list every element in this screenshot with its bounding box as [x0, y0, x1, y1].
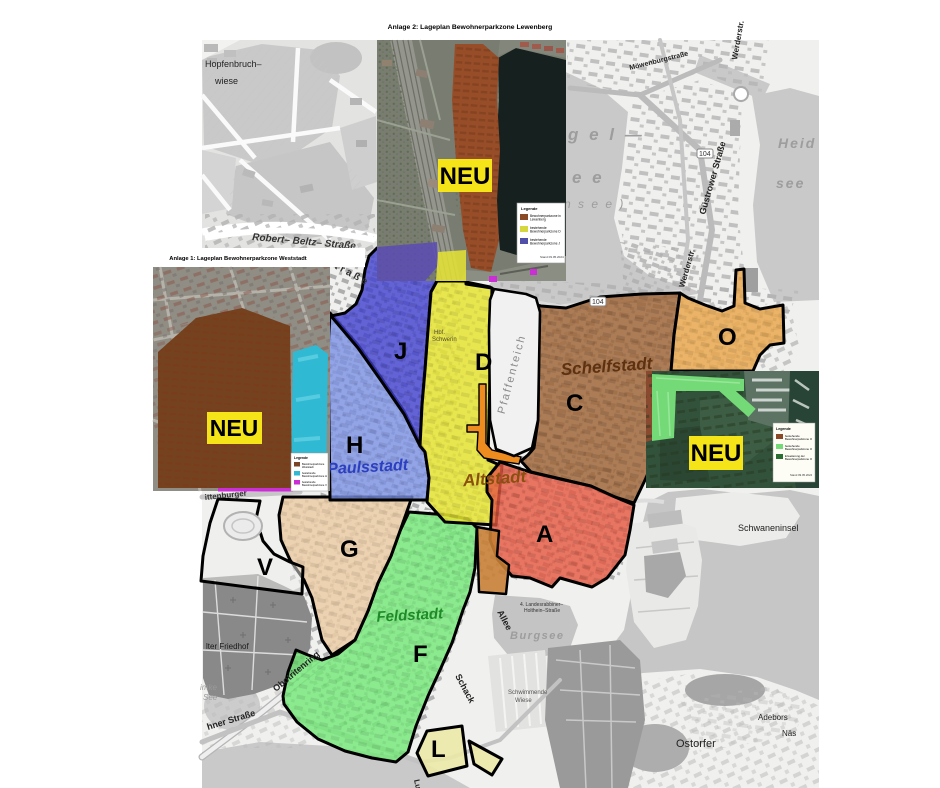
svg-text:Legende: Legende: [521, 206, 538, 211]
svg-text:see: see: [776, 175, 805, 191]
svg-text:J: J: [394, 338, 407, 365]
svg-text:Anlage 2: Lageplan Bewohnerpar: Anlage 2: Lageplan Bewohnerparkzone Lewe…: [388, 24, 553, 31]
svg-text:Weststadt: Weststadt: [302, 465, 314, 469]
svg-text:Bewohnerparkzone O: Bewohnerparkzone O: [785, 437, 813, 441]
svg-text:g e l —: g e l —: [567, 125, 645, 144]
svg-text:C: C: [566, 390, 583, 417]
svg-text:L: L: [431, 736, 446, 763]
svg-text:V: V: [257, 554, 273, 581]
svg-text:Schwerin: Schwerin: [432, 337, 457, 343]
svg-text:O: O: [718, 324, 737, 351]
svg-text:Bewohnerparkzone H: Bewohnerparkzone H: [302, 474, 327, 478]
svg-text:104: 104: [592, 299, 604, 306]
svg-text:Holthein–Straße: Holthein–Straße: [524, 608, 560, 614]
svg-text:Bewohnerparkzone J: Bewohnerparkzone J: [530, 242, 560, 246]
svg-text:Burgsee: Burgsee: [510, 630, 565, 642]
svg-text:e e: e e: [572, 168, 605, 187]
svg-text:Bewohnerparkzone V: Bewohnerparkzone V: [302, 483, 327, 487]
svg-text:A: A: [536, 521, 553, 548]
svg-text:Schwimmende: Schwimmende: [508, 690, 548, 696]
svg-text:NEU: NEU: [691, 440, 742, 467]
svg-text:Legende: Legende: [294, 456, 308, 460]
svg-text:Hopfenbruch–: Hopfenbruch–: [205, 59, 262, 69]
svg-text:Bewohnerparkzone D: Bewohnerparkzone D: [530, 230, 561, 234]
svg-text:Ostorfer: Ostorfer: [676, 738, 716, 750]
svg-text:wiese: wiese: [214, 76, 238, 86]
svg-text:Anlage 1: Lageplan Bewohnerpar: Anlage 1: Lageplan Bewohnerparkzone West…: [169, 256, 307, 262]
svg-text:lter Friedhof: lter Friedhof: [206, 642, 249, 651]
svg-text:Feldstadt: Feldstadt: [376, 605, 444, 626]
svg-text:Legende: Legende: [776, 427, 791, 431]
svg-text:n s e e ): n s e e ): [564, 197, 625, 211]
svg-text:F: F: [413, 641, 428, 668]
svg-text:NEU: NEU: [440, 163, 491, 190]
svg-text:104: 104: [699, 151, 711, 158]
svg-text:NEU: NEU: [210, 415, 259, 441]
svg-text:H: H: [346, 432, 363, 459]
svg-text:Stand 09.05.2024: Stand 09.05.2024: [790, 473, 813, 477]
svg-text:Bewohnerparkzone O: Bewohnerparkzone O: [785, 457, 813, 461]
svg-text:See: See: [203, 693, 218, 702]
svg-text:Adebors: Adebors: [758, 713, 788, 722]
svg-text:Bewohnerparkzone O: Bewohnerparkzone O: [785, 447, 813, 451]
svg-text:Heid: Heid: [778, 135, 816, 151]
svg-text:Hbf.: Hbf.: [434, 330, 445, 336]
svg-text:Schwaneninsel: Schwaneninsel: [738, 523, 799, 533]
svg-text:Lewenberg: Lewenberg: [530, 218, 546, 222]
svg-text:Wiese: Wiese: [515, 698, 532, 704]
svg-text:Stand 09.05.2024: Stand 09.05.2024: [540, 255, 564, 259]
svg-text:D: D: [475, 349, 492, 376]
svg-text:imke: imke: [200, 683, 217, 692]
svg-text:Näs: Näs: [782, 729, 796, 738]
svg-text:G: G: [340, 536, 359, 563]
